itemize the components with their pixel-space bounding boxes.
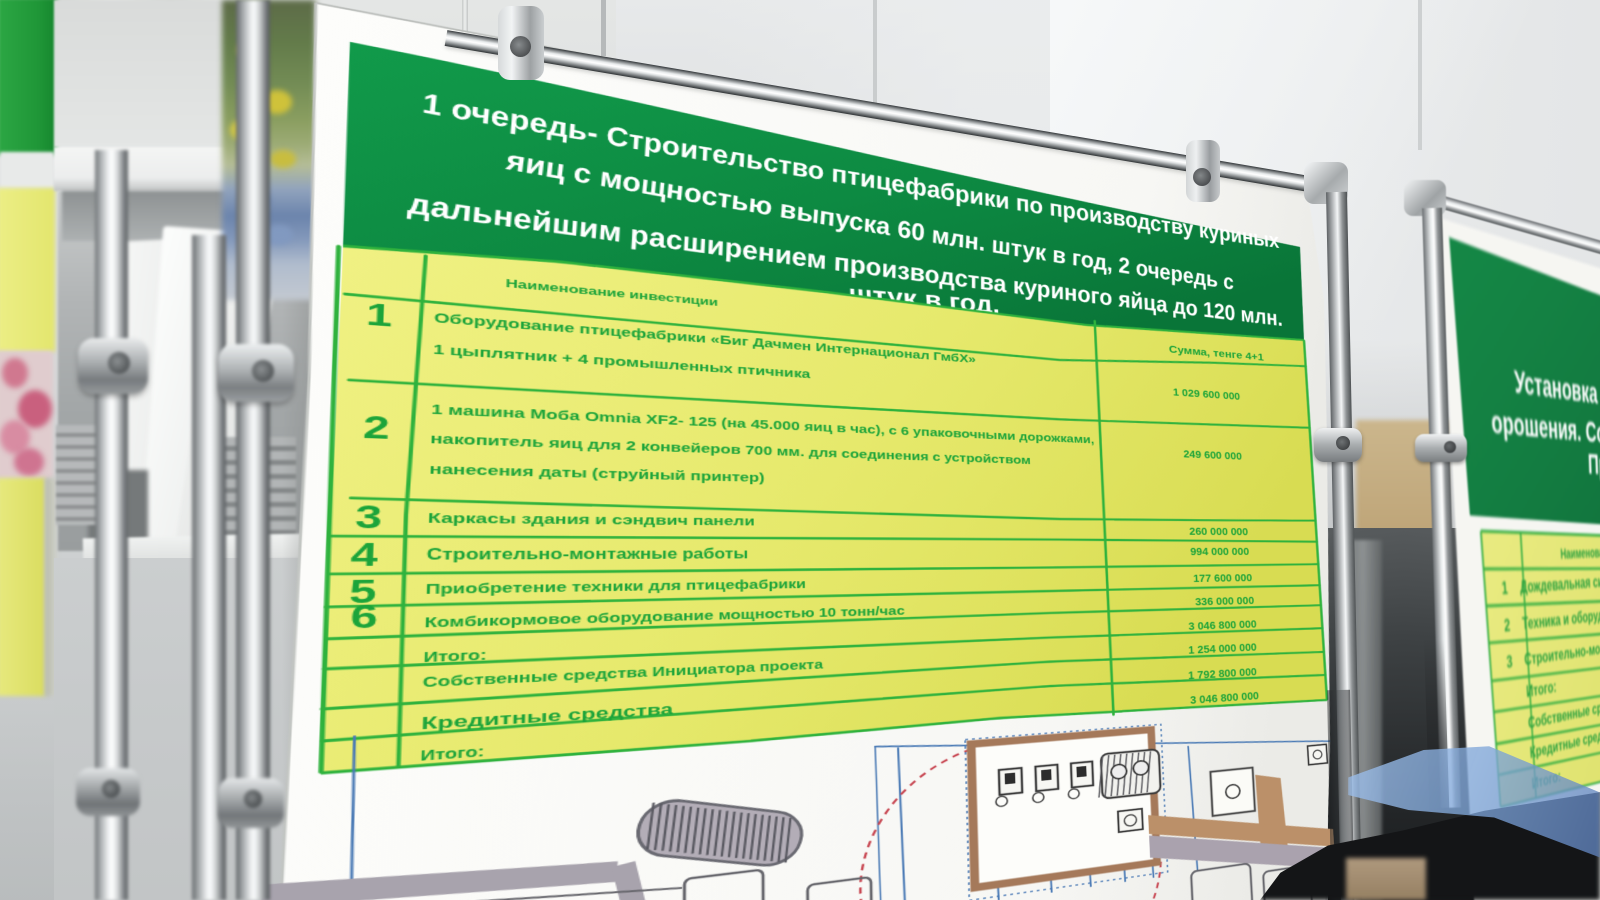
svg-text:3: 3: [1506, 652, 1513, 672]
svg-text:177 600 000: 177 600 000: [1193, 573, 1252, 585]
svg-text:3: 3: [355, 499, 383, 535]
svg-text:2: 2: [363, 410, 391, 446]
svg-text:Итого:: Итого:: [423, 647, 487, 666]
svg-text:2: 2: [1504, 615, 1511, 635]
svg-text:Каркасы здания и сэндвич панел: Каркасы здания и сэндвич панели: [428, 510, 755, 528]
svg-text:6: 6: [350, 599, 379, 636]
svg-text:4: 4: [350, 537, 378, 573]
svg-text:Наименование инвестиции: Наименование инвестиции: [1560, 544, 1600, 562]
svg-text:1: 1: [1501, 578, 1508, 598]
svg-text:Проект «Береке»: Проект «Береке»: [1587, 449, 1600, 485]
svg-text:336 000 000: 336 000 000: [1195, 595, 1255, 607]
svg-text:994 000 000: 994 000 000: [1190, 546, 1249, 557]
svg-text:260 000 000: 260 000 000: [1189, 526, 1248, 537]
svg-text:1: 1: [365, 297, 393, 333]
svg-text:Строительно-монтажные работы: Строительно-монтажные работы: [426, 546, 748, 563]
